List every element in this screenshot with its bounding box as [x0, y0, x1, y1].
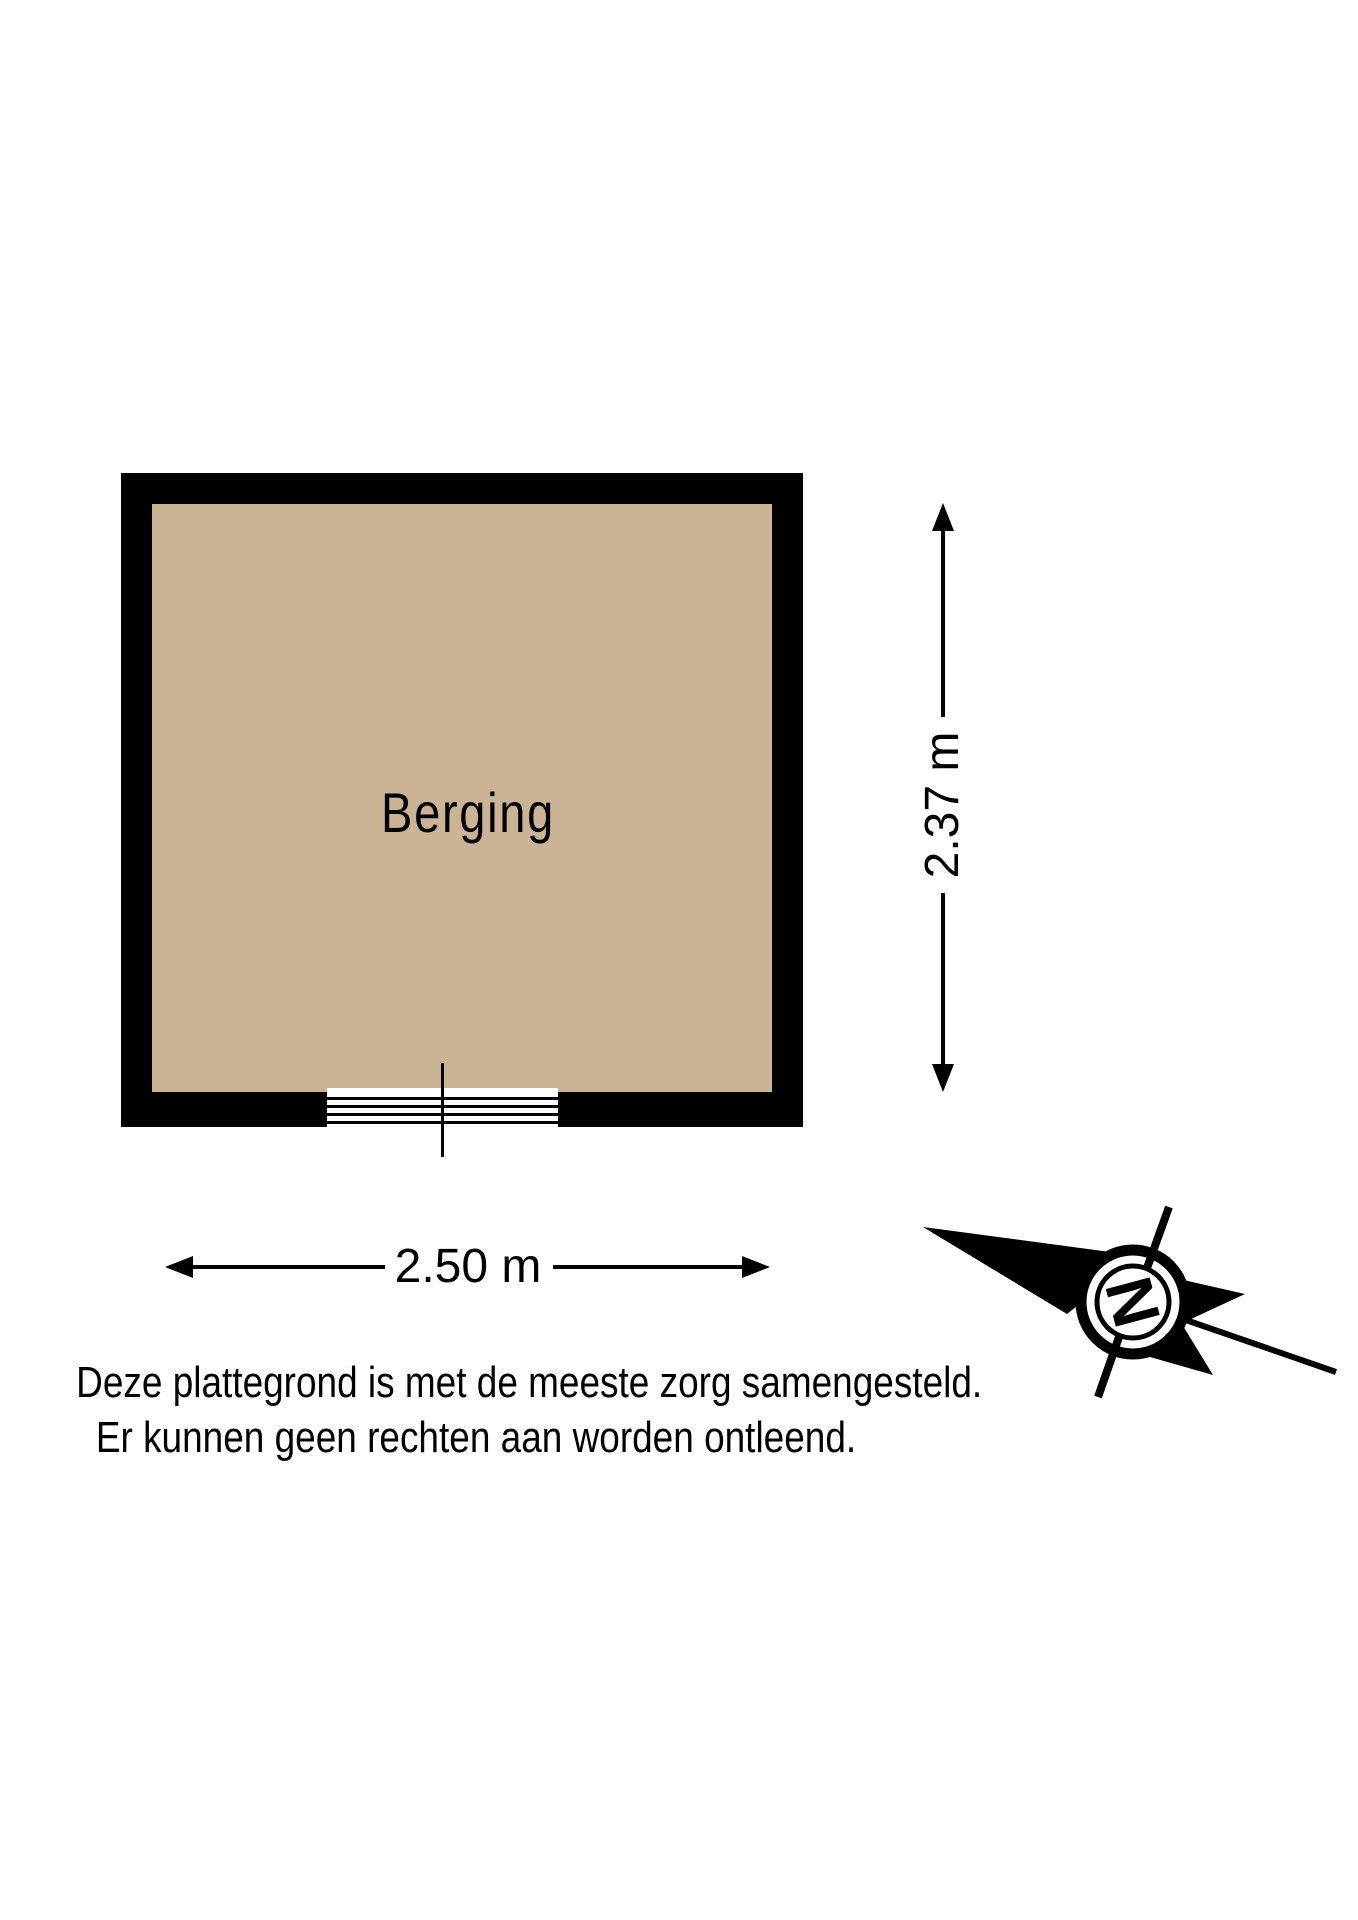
height-dimension-label: 2.37 m: [918, 705, 968, 905]
vertical-dimension-line: [941, 529, 945, 717]
vertical-dimension-line: [941, 893, 945, 1066]
horizontal-dimension-line: [191, 1265, 385, 1269]
door-center-line: [441, 1063, 444, 1157]
horizontal-dimension-line: [553, 1265, 743, 1269]
arrow-left-icon: [165, 1256, 193, 1278]
compass-icon: N: [895, 1190, 1355, 1410]
disclaimer-text: Deze plattegrond is met de meeste zorg s…: [76, 1355, 876, 1465]
disclaimer-line-2: Er kunnen geen rechten aan worden ontlee…: [76, 1410, 876, 1465]
disclaimer-line-1: Deze plattegrond is met de meeste zorg s…: [76, 1355, 876, 1410]
room-label: Berging: [300, 785, 636, 841]
width-dimension-label: 2.50 m: [368, 1242, 568, 1292]
arrow-down-icon: [932, 1064, 954, 1092]
floorplan-canvas: Berging 2.37 m 2.50 m Deze plattegrond i…: [0, 0, 1358, 1920]
arrow-right-icon: [742, 1256, 770, 1278]
arrow-up-icon: [932, 503, 954, 531]
